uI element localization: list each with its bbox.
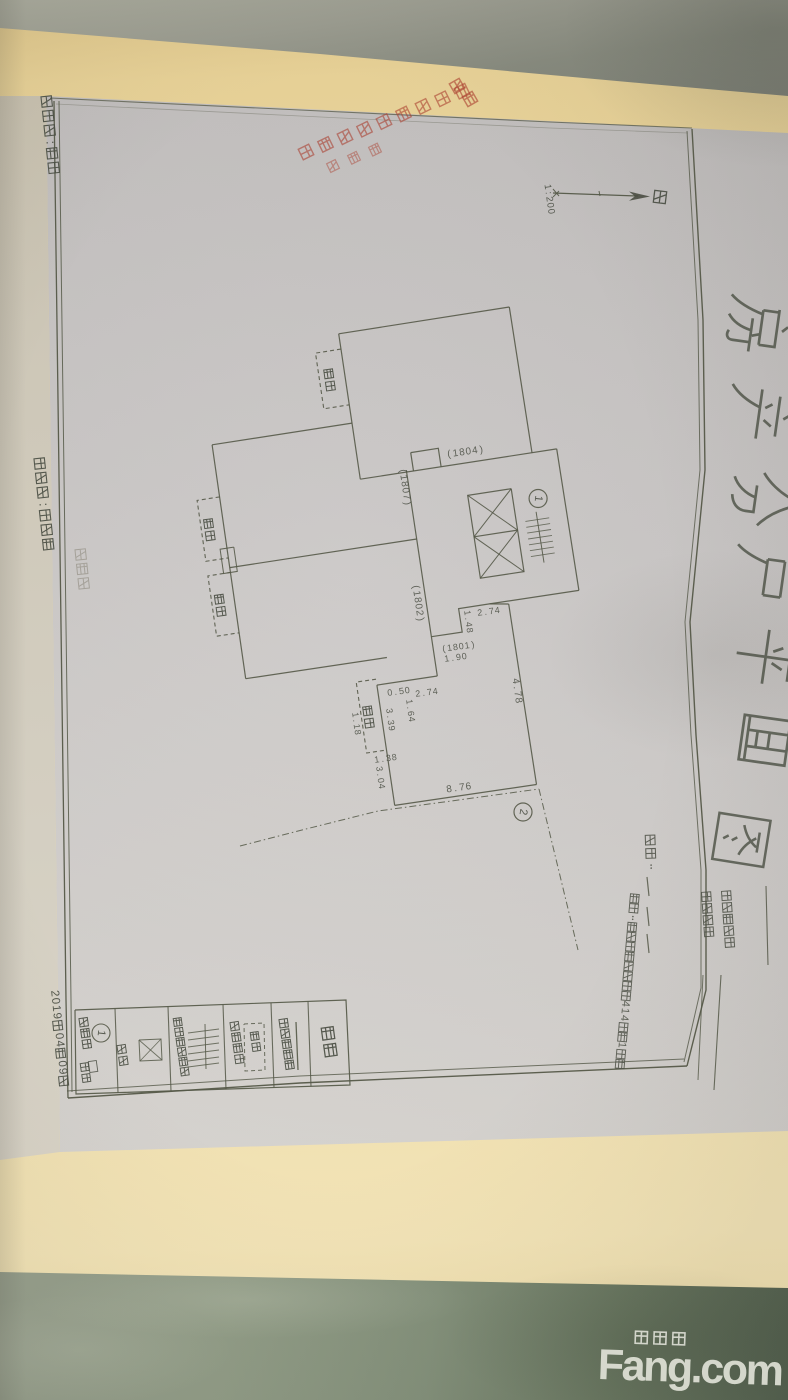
svg-text:4: 4 <box>619 1000 631 1007</box>
svg-text:.: . <box>381 754 385 764</box>
svg-text:1: 1 <box>464 640 470 651</box>
svg-text:1: 1 <box>95 1029 108 1037</box>
svg-text::: : <box>543 191 554 195</box>
svg-text:.: . <box>453 783 457 794</box>
svg-text:): ) <box>471 639 475 649</box>
svg-text:1: 1 <box>350 712 361 718</box>
svg-text:Fang.com: Fang.com <box>597 1341 783 1395</box>
svg-text:4: 4 <box>432 686 438 697</box>
svg-text:4: 4 <box>406 716 417 722</box>
svg-text:.: . <box>405 706 415 710</box>
svg-text:): ) <box>479 444 484 455</box>
svg-text:8: 8 <box>512 697 524 704</box>
svg-text:8: 8 <box>391 752 397 763</box>
svg-text:2: 2 <box>413 609 425 616</box>
svg-text:.: . <box>511 685 522 689</box>
svg-text:6: 6 <box>465 781 472 793</box>
svg-text:2: 2 <box>517 808 530 816</box>
svg-text:1: 1 <box>462 610 473 616</box>
svg-text:1: 1 <box>542 184 554 191</box>
svg-text:.: . <box>351 719 361 723</box>
svg-text:2: 2 <box>415 688 421 699</box>
svg-text:0: 0 <box>404 685 410 696</box>
svg-text:1: 1 <box>50 1005 63 1013</box>
svg-text:1: 1 <box>615 1041 627 1048</box>
svg-text:9: 9 <box>386 725 397 731</box>
svg-text:4: 4 <box>510 678 522 685</box>
svg-text:4: 4 <box>471 445 478 457</box>
svg-text:8: 8 <box>446 784 453 796</box>
svg-text:1: 1 <box>374 754 380 765</box>
svg-text:1: 1 <box>618 1007 630 1014</box>
svg-text:0: 0 <box>545 208 557 215</box>
svg-text:.: . <box>422 688 426 698</box>
svg-text:.: . <box>375 773 385 777</box>
svg-text:1: 1 <box>532 495 545 503</box>
svg-text:8: 8 <box>464 627 475 633</box>
svg-text:1: 1 <box>444 653 450 664</box>
svg-text:): ) <box>414 617 425 622</box>
svg-text:1: 1 <box>404 699 415 705</box>
svg-text:9: 9 <box>56 1067 69 1075</box>
svg-text:.: . <box>385 715 395 719</box>
svg-text:2: 2 <box>48 990 61 998</box>
svg-text:4: 4 <box>494 605 500 616</box>
svg-text:2: 2 <box>477 607 483 618</box>
svg-text:.: . <box>451 653 455 663</box>
svg-text:.: . <box>484 607 488 617</box>
svg-text:8: 8 <box>352 729 363 735</box>
svg-text:3: 3 <box>374 766 385 772</box>
svg-text:0: 0 <box>55 1060 68 1068</box>
svg-text:0: 0 <box>461 651 467 662</box>
svg-text:4: 4 <box>53 1040 66 1048</box>
svg-text:.: . <box>463 617 473 621</box>
svg-text::: : <box>36 502 51 507</box>
svg-text:0: 0 <box>52 1032 65 1040</box>
svg-text:.: . <box>394 687 398 697</box>
svg-text:4: 4 <box>618 1015 630 1022</box>
svg-text:9: 9 <box>50 1012 63 1020</box>
svg-text:0: 0 <box>387 687 393 698</box>
svg-text:4: 4 <box>376 783 387 789</box>
svg-text:(: ( <box>442 643 446 653</box>
svg-text::: : <box>43 140 58 145</box>
svg-text:0: 0 <box>49 997 62 1005</box>
svg-text:3: 3 <box>384 708 395 714</box>
